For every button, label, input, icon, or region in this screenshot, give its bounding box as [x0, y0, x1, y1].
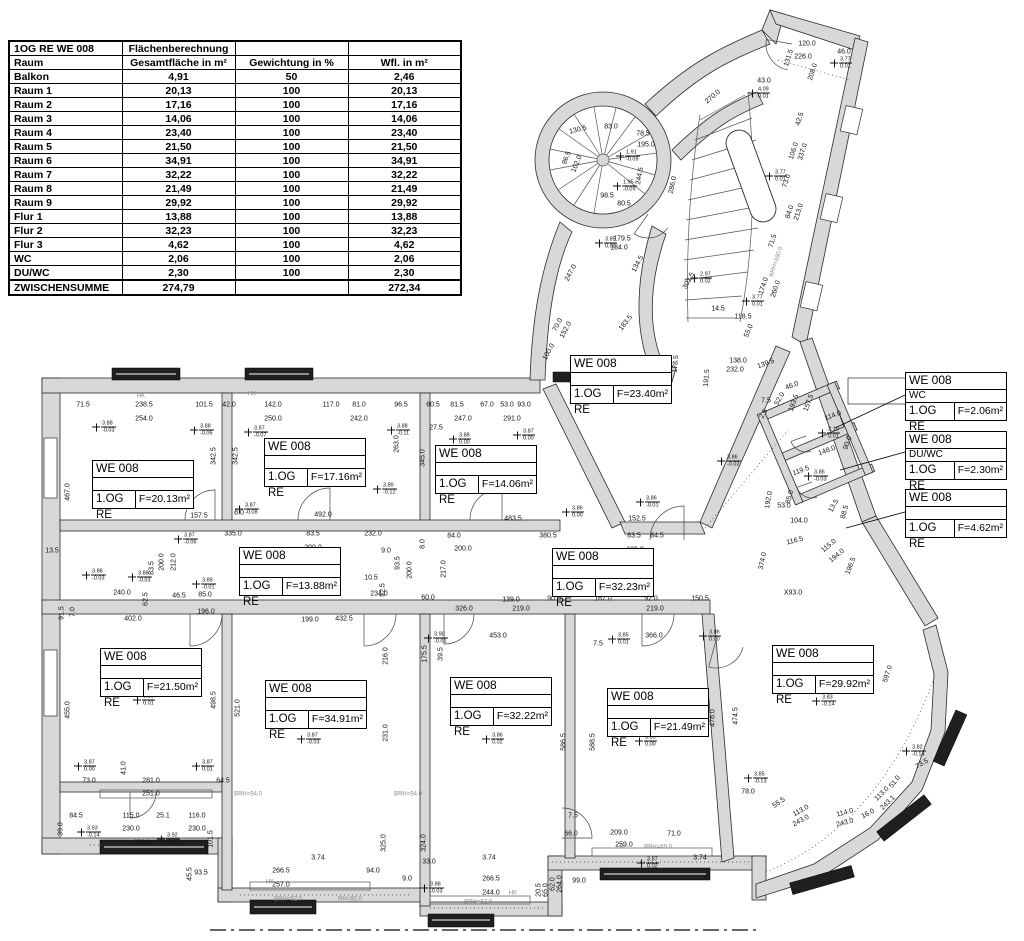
- spot-value: 3.85: [753, 772, 768, 779]
- dimension-label: 93.0: [517, 402, 531, 409]
- dimension-label: 78.5: [636, 131, 650, 138]
- table-cell: 1OG RE WE 008: [9, 41, 122, 56]
- spot-value: 3.89: [382, 483, 397, 490]
- room-stamp-org: 1.OG RE: [571, 386, 614, 403]
- spot-value: 0.00: [83, 767, 96, 773]
- room-stamp-we: WE 008: [773, 646, 873, 663]
- dimension-label: 3.74: [482, 855, 496, 862]
- spot-cross-icon: [190, 426, 198, 434]
- dimension-label: 478.0: [710, 709, 717, 727]
- dimension-label: 586.5: [561, 733, 568, 751]
- spot-elevation: 3.83-0.14: [812, 695, 836, 708]
- dimension-label: 78.0: [741, 789, 755, 796]
- dimension-label: 85.0: [198, 592, 212, 599]
- room-stamp-we: WE 008: [266, 681, 366, 698]
- dimension-label: 33.0: [422, 859, 436, 866]
- spot-elevation: 3.93-0.14: [77, 826, 101, 839]
- room-stamp-org: 1.OG RE: [93, 491, 136, 508]
- dimension-label: 84.5: [650, 533, 664, 540]
- table-cell: ZWISCHENSUMME: [9, 280, 122, 295]
- room-stamp: WE 0081.OG REF=21.49m²: [607, 688, 709, 737]
- dimension-label: 98.5: [600, 193, 614, 200]
- spot-cross-icon: [82, 571, 90, 579]
- spot-elevation: 3.86-0.02: [717, 455, 741, 468]
- table-cell: Raum 5: [9, 140, 122, 154]
- spot-cross-icon: [616, 152, 624, 160]
- dimension-label: 231.0: [383, 724, 390, 742]
- spot-elevation: 3.850.01: [608, 633, 630, 646]
- table-cell: 100: [235, 266, 348, 281]
- room-stamp-bottom: 1.OG REF=17.16m²: [265, 469, 365, 486]
- table-cell: Wfl. in m²: [348, 56, 461, 70]
- dimension-label: RH=92.0: [338, 897, 362, 904]
- dimension-label: 60.5: [426, 402, 440, 409]
- table-row: Raum 821,4910021,49: [9, 182, 461, 196]
- dimension-label: 46.0: [837, 49, 851, 56]
- table-cell: Balkon: [9, 70, 122, 84]
- spot-value: -0.13: [753, 779, 768, 785]
- spot-value: 3.87: [83, 760, 96, 767]
- spot-elevation: 3.82-0.14: [902, 745, 926, 758]
- dimension-label: 116.0: [189, 813, 206, 820]
- room-stamp-org: 1.OG RE: [773, 676, 816, 693]
- spot-elevation: 3.88-0.03: [92, 421, 116, 434]
- dimension-label: 91.5: [59, 606, 66, 620]
- spot-value: 3.93: [86, 826, 101, 833]
- room-stamp-we: WE 008: [451, 678, 551, 695]
- spot-value: 3.77: [839, 57, 852, 64]
- table-cell: 100: [235, 84, 348, 98]
- table-cell: Flur 2: [9, 224, 122, 238]
- room-stamp-we: WE 008: [553, 549, 653, 566]
- dimension-label: BRH=82.0: [464, 900, 492, 907]
- table-cell: 32,22: [122, 168, 235, 182]
- room-stamp-sub: [93, 478, 193, 491]
- spot-elevation: 4.090.01: [748, 87, 770, 100]
- table-row: DU/WC2,301002,30: [9, 266, 461, 281]
- room-stamp-bottom: 1.OG REF=4.62m²: [906, 520, 1006, 537]
- room-stamp-area: F=21.50m²: [144, 679, 201, 696]
- dimension-label: 588.5: [590, 733, 597, 751]
- table-cell: 21,49: [348, 182, 461, 196]
- dimension-label: 324.0: [421, 834, 428, 852]
- room-stamp-sub: [553, 566, 653, 579]
- spot-elevation: 1.91-0.09: [616, 150, 640, 163]
- spot-elevation: 3.89-0.01: [192, 578, 216, 591]
- spot-elevation: 3.870.00: [74, 760, 96, 773]
- table-cell: 100: [235, 168, 348, 182]
- dimension-label: 20.5: [536, 883, 543, 897]
- dimension-label: 200.0: [454, 546, 472, 553]
- table-cell: 21,50: [122, 140, 235, 154]
- spot-value: 2.10: [827, 427, 840, 434]
- spot-value: 0.00: [708, 637, 721, 643]
- table-row: Raum 732,2210032,22: [9, 168, 461, 182]
- room-stamp-we: WE 008: [906, 373, 1006, 390]
- room-stamp-area: F=2.30m²: [955, 462, 1006, 479]
- dimension-label: HK: [266, 880, 274, 887]
- spot-elevation: 2.970.02: [690, 272, 712, 285]
- room-stamp-area: F=32.22m²: [494, 708, 551, 725]
- room-stamp: WE 0081.OG REF=21.50m²: [100, 648, 202, 697]
- table-cell: DU/WC: [9, 266, 122, 281]
- dimension-label: 101.5: [208, 830, 215, 848]
- room-stamp-org: 1.OG RE: [608, 719, 651, 736]
- spot-cross-icon: [513, 431, 521, 439]
- spot-elevation: 3.85-0.13: [744, 772, 768, 785]
- table-cell: 2,30: [122, 266, 235, 281]
- spot-value: -0.14: [86, 833, 101, 839]
- spot-cross-icon: [690, 274, 698, 282]
- table-row: Raum 120,1310020,13: [9, 84, 461, 98]
- spot-value: 3.86: [813, 470, 828, 477]
- dimension-label: HK: [248, 392, 256, 399]
- spot-cross-icon: [74, 762, 82, 770]
- dimension-label: 175.5: [422, 645, 429, 663]
- dimension-label: 379.0: [133, 840, 151, 847]
- room-stamp-area: F=2.06m²: [955, 403, 1006, 420]
- dimension-label: 13.5: [45, 548, 59, 555]
- spot-value: 3.86: [571, 506, 584, 513]
- spot-value: -0.03: [101, 428, 116, 434]
- spot-value: 3.88: [458, 433, 471, 440]
- spot-elevation: 3.90-0.01: [424, 632, 448, 645]
- table-cell: 32,22: [348, 168, 461, 182]
- spot-cross-icon: [192, 762, 200, 770]
- spot-cross-icon: [373, 485, 381, 493]
- dimension-label: 150.5: [691, 596, 709, 603]
- dimension-label: 7.5: [593, 641, 603, 648]
- table-cell: Flur 3: [9, 238, 122, 252]
- spot-elevation: 3.88-0.03: [420, 882, 444, 895]
- dimension-label: HK: [137, 394, 145, 401]
- spot-value: -0.01: [201, 585, 216, 591]
- spot-value: -0.01: [645, 503, 660, 509]
- table-cell: 20,13: [122, 84, 235, 98]
- room-stamp-bottom: 1.OG REF=32.23m²: [553, 579, 653, 596]
- room-stamp-we: WE 008: [906, 432, 1006, 449]
- spot-cross-icon: [235, 505, 243, 513]
- table-cell: Flur 1: [9, 210, 122, 224]
- spot-value: 0.01: [751, 302, 764, 308]
- dimension-label: 226.0: [794, 54, 812, 61]
- dimension-label: 66.0: [564, 831, 578, 838]
- table-sum-row: ZWISCHENSUMME274,79272,34: [9, 280, 461, 295]
- room-stamp-area: F=14.06m²: [479, 476, 536, 493]
- dimension-label: 483.5: [504, 516, 522, 523]
- spot-value: 3.77: [774, 170, 787, 177]
- spot-value: 3.92: [166, 833, 180, 840]
- room-stamp-we: WE 008: [93, 461, 193, 478]
- room-stamp-we: WE 008: [265, 439, 365, 456]
- spot-value: 3.83: [821, 695, 836, 702]
- dimension-label: 199.0: [301, 617, 319, 624]
- spot-value: -0.01: [433, 639, 448, 645]
- spot-cross-icon: [77, 828, 85, 836]
- table-cell: 272,34: [348, 280, 461, 295]
- dimension-label: 342.5: [233, 447, 240, 465]
- dimension-label: 232.0: [726, 367, 744, 374]
- table-cell: 4,62: [348, 238, 461, 252]
- room-stamp: WE 0081.OG REF=34.91m²: [265, 680, 367, 729]
- dimension-label: 96.5: [394, 402, 408, 409]
- table-cell: 100: [235, 140, 348, 154]
- room-stamp-sub: [451, 695, 551, 708]
- dimension-label: 39.0: [58, 822, 65, 836]
- room-stamp-area: F=4.62m²: [955, 520, 1006, 537]
- spot-value: 0.01: [757, 94, 770, 100]
- table-cell: 4,62: [122, 238, 235, 252]
- room-stamp-sub: DU/WC: [906, 449, 1006, 462]
- spot-elevation: 3.860.02: [482, 733, 504, 746]
- spot-value: -0.08: [244, 510, 259, 516]
- spot-value: 0.00: [571, 513, 584, 519]
- table-cell: 2,06: [348, 252, 461, 266]
- spot-elevation: 3.870.01: [192, 760, 214, 773]
- table-cell: [348, 41, 461, 56]
- dimension-label: 453.0: [489, 633, 507, 640]
- spot-elevation: 3.92-0.11: [157, 833, 180, 846]
- dimension-label: 46.5: [172, 593, 186, 600]
- dimension-label: 250.0: [264, 416, 282, 423]
- dimension-label: 84.5: [69, 813, 83, 820]
- dimension-label: 139.0: [502, 597, 520, 604]
- table-cell: Raum 1: [9, 84, 122, 98]
- room-stamp-bottom: 1.OG REF=13.88m²: [240, 578, 340, 595]
- room-stamp: WE 008 1.OG REF=4.62m²: [905, 489, 1007, 538]
- dimension-label: 41.0: [121, 761, 128, 775]
- table-cell: WC: [9, 252, 122, 266]
- dimension-label: 53.0: [777, 503, 791, 510]
- spot-cross-icon: [595, 239, 603, 247]
- dimension-label: HK: [617, 845, 625, 852]
- dimension-label: 251.0: [142, 791, 160, 798]
- spot-cross-icon: [482, 735, 490, 743]
- room-stamp-bottom: 1.OG REF=20.13m²: [93, 491, 193, 508]
- spot-value: 3.88: [429, 882, 444, 889]
- dimension-label: 94.0: [366, 868, 380, 875]
- table-cell: 274,79: [122, 280, 235, 295]
- table-cell: 20,13: [348, 84, 461, 98]
- spot-elevation: 3.870.02: [637, 857, 659, 870]
- table-row: WC2,061002,06: [9, 252, 461, 266]
- dimension-label: 39.5: [438, 647, 445, 661]
- spot-value: 3.86: [708, 630, 721, 637]
- room-stamp-org: 1.OG RE: [240, 578, 283, 595]
- table-cell: 100: [235, 196, 348, 210]
- spot-value: 1.91: [625, 150, 640, 157]
- table-cell: 4,91: [122, 70, 235, 84]
- room-stamp-bottom: 1.OG REF=32.22m²: [451, 708, 551, 725]
- spot-elevation: 3.87-0.08: [235, 503, 259, 516]
- table-cell: 34,91: [122, 154, 235, 168]
- room-stamp-bottom: 1.OG REF=29.92m²: [773, 676, 873, 693]
- spot-value: 3.85: [617, 633, 630, 640]
- spot-elevation: 3.88-0.06: [190, 424, 214, 437]
- dimension-label: 217.0: [441, 560, 448, 578]
- room-stamp-sub: [773, 663, 873, 676]
- dimension-label: 64.5: [216, 778, 230, 785]
- dimension-label: 196.0: [197, 609, 215, 616]
- spot-value: 0.00: [604, 244, 617, 250]
- spot-value: -0.03: [91, 576, 106, 582]
- dimension-label: 93.5: [395, 556, 402, 570]
- floor-plan-canvas: 71.5238.5101.542.0142.0117.081.096.560.5…: [0, 0, 1024, 941]
- table-cell: 13,88: [122, 210, 235, 224]
- area-calculation-table: 1OG RE WE 008FlächenberechnungRaumGesamt…: [8, 40, 462, 296]
- spot-elevation: 3.88-0.11: [387, 424, 410, 437]
- spot-value: -0.12: [382, 490, 397, 496]
- table-cell: 23,40: [122, 126, 235, 140]
- dimension-label: 325.0: [381, 834, 388, 852]
- table-cell: Flächenberechnung: [122, 41, 235, 56]
- spot-value: -0.03: [813, 477, 828, 483]
- dimension-label: 200.0: [159, 553, 166, 571]
- spot-elevation: 3.870.00: [513, 429, 535, 442]
- table-cell: 32,23: [348, 224, 461, 238]
- spot-cross-icon: [562, 508, 570, 516]
- room-stamp-sub: WC: [906, 390, 1006, 403]
- table-cell: 50: [235, 70, 348, 84]
- spot-elevation: 3.860.00: [562, 506, 584, 519]
- spot-value: 3.77: [751, 295, 764, 302]
- spot-elevation: 3.770.01: [830, 57, 852, 70]
- dimension-label: 240.0: [113, 590, 131, 597]
- dimension-label: 291.0: [503, 416, 521, 423]
- table-cell: 14,06: [348, 112, 461, 126]
- spot-value: 0.01: [839, 64, 852, 70]
- dimension-label: 83.5: [627, 533, 641, 540]
- spot-cross-icon: [192, 580, 200, 588]
- dimension-label: 219.0: [512, 606, 530, 613]
- dimension-label: 455.0: [65, 701, 72, 719]
- table-cell: Raum 4: [9, 126, 122, 140]
- dimension-label: 65.0: [543, 883, 550, 897]
- spot-elevation: 3.860.00: [699, 630, 721, 643]
- spot-value: 0.02: [491, 740, 504, 746]
- spot-elevation: 3.88-0.03: [82, 569, 106, 582]
- dimension-label: 62.0: [550, 877, 557, 891]
- spot-cross-icon: [635, 737, 643, 745]
- dimension-label: 104.0: [790, 518, 808, 525]
- dimension-label: 42.0: [222, 402, 236, 409]
- table-cell: Raum 9: [9, 196, 122, 210]
- spot-cross-icon: [133, 696, 141, 704]
- dimension-label: 263.0: [394, 435, 401, 453]
- table-cell: 100: [235, 238, 348, 252]
- spot-value: 3.86: [726, 455, 741, 462]
- room-stamp-bottom: 1.OG REF=14.06m²: [436, 476, 536, 493]
- room-stamp-area: F=17.16m²: [308, 469, 365, 486]
- spot-cross-icon: [613, 182, 621, 190]
- spot-value: 3.88: [91, 569, 106, 576]
- table-cell: 29,92: [348, 196, 461, 210]
- table-cell: 23,40: [348, 126, 461, 140]
- table-cell: 100: [235, 182, 348, 196]
- room-stamp-org: 1.OG RE: [451, 708, 494, 725]
- dimension-label: 216.0: [383, 647, 390, 665]
- spot-value: -0.09: [622, 187, 637, 193]
- room-stamp-area: F=29.92m²: [816, 676, 873, 693]
- room-stamp-we: WE 008: [240, 548, 340, 565]
- dimension-label: BRH=94.0: [234, 792, 262, 799]
- dimension-label: 230.0: [188, 826, 206, 833]
- spot-elevation: 3.87-0.06: [174, 533, 198, 546]
- dimension-label: 43.0: [757, 78, 771, 85]
- table-row: Raum 521,5010021,50: [9, 140, 461, 154]
- room-stamp-bottom: 1.OG REF=21.50m²: [101, 679, 201, 696]
- dimension-label: 142.0: [264, 402, 282, 409]
- spot-value: 3.85: [604, 237, 617, 244]
- spot-cross-icon: [744, 774, 752, 782]
- spot-value: 2.97: [699, 272, 712, 279]
- dimension-label: 99.0: [572, 878, 586, 885]
- room-stamp: WE 0081.OG REF=29.92m²: [772, 645, 874, 694]
- room-stamp-bottom: 1.OG REF=34.91m²: [266, 711, 366, 728]
- dimension-label: X93.0: [784, 590, 802, 597]
- table-cell: 2,30: [348, 266, 461, 281]
- spot-cross-icon: [818, 429, 826, 437]
- dimension-label: 9.0: [402, 876, 412, 883]
- room-stamp-we: WE 008: [101, 649, 201, 666]
- spot-elevation: 3.86-0.03: [804, 470, 828, 483]
- dimension-label: 157.5: [190, 513, 208, 520]
- spot-value: 3.87: [306, 733, 321, 740]
- table-row: Flur 113,8810013,88: [9, 210, 461, 224]
- spot-value: 3.87: [183, 533, 198, 540]
- table-cell: [235, 41, 348, 56]
- spot-cross-icon: [742, 297, 750, 305]
- spot-value: 0.01: [617, 640, 630, 646]
- dimension-label: 118.5: [735, 314, 752, 321]
- room-stamp-bottom: 1.OG REF=2.30m²: [906, 462, 1006, 479]
- dimension-label: 498.5: [211, 691, 218, 709]
- room-stamp-area: F=21.49m²: [651, 719, 708, 736]
- dimension-label: 380.5: [539, 533, 557, 540]
- room-stamp-sub: [240, 565, 340, 578]
- spot-value: 0.00: [522, 436, 535, 442]
- spot-cross-icon: [830, 59, 838, 67]
- dimension-label: 521.0: [235, 699, 242, 717]
- dimension-label: 7.5: [761, 398, 771, 405]
- spot-cross-icon: [699, 632, 707, 640]
- spot-cross-icon: [174, 535, 182, 543]
- table-row: Balkon4,91502,46: [9, 70, 461, 84]
- table-cell: 34,91: [348, 154, 461, 168]
- room-stamp-org: 1.OG RE: [906, 520, 955, 537]
- dimension-label: 71.0: [667, 831, 681, 838]
- table-cell: 100: [235, 224, 348, 238]
- spot-value: 3.88: [199, 424, 214, 431]
- room-stamp-we: WE 008: [608, 689, 708, 706]
- room-stamp: WE 0081.OG REF=13.88m²: [239, 547, 341, 596]
- dimension-label: 115.0: [123, 813, 140, 820]
- dimension-label: 73.0: [82, 778, 96, 785]
- room-stamp-sub: [266, 698, 366, 711]
- dimension-label: 27.5: [429, 425, 443, 432]
- dimension-label: 120.0: [798, 41, 816, 48]
- room-stamp-sub: [906, 507, 1006, 520]
- spot-elevation: 3.850.00: [595, 237, 617, 250]
- spot-value: 4.09: [757, 87, 770, 94]
- dimension-label: 467.0: [65, 483, 72, 501]
- dimension-label: 238.5: [135, 402, 153, 409]
- room-stamp-bottom: 1.OG REF=2.06m²: [906, 403, 1006, 420]
- room-stamp-bottom: 1.OG REF=23.40m²: [571, 386, 671, 403]
- spot-cross-icon: [637, 859, 645, 867]
- table-row: Raum 929,9210029,92: [9, 196, 461, 210]
- dimension-label: 402.0: [124, 616, 142, 623]
